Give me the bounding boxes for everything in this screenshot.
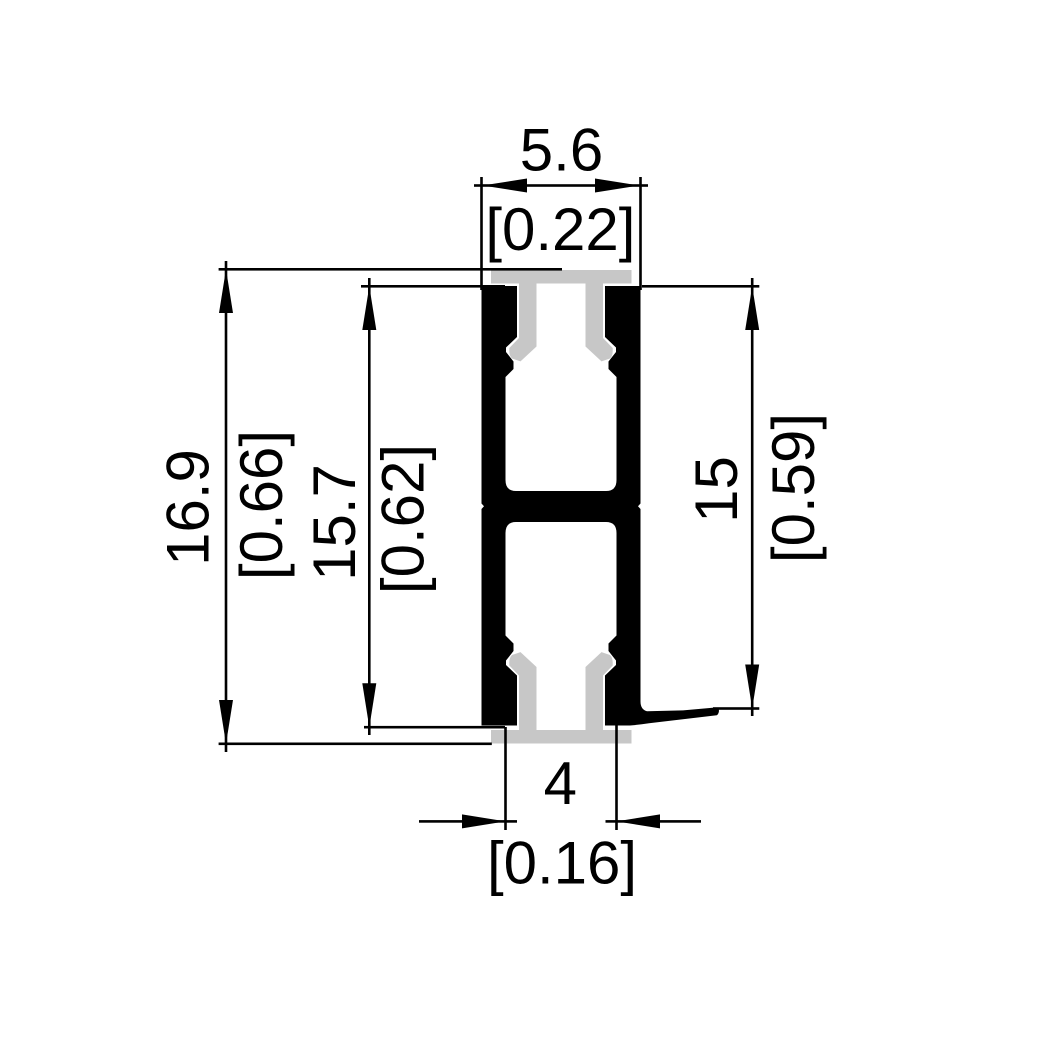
svg-text:4: 4 — [544, 750, 577, 817]
svg-text:[0.66]: [0.66] — [228, 430, 295, 580]
svg-text:16.9: 16.9 — [155, 449, 222, 566]
svg-text:15.7: 15.7 — [301, 464, 368, 581]
svg-text:[0.62]: [0.62] — [369, 444, 436, 594]
svg-text:[0.59]: [0.59] — [760, 413, 827, 563]
svg-text:15: 15 — [683, 456, 750, 523]
svg-text:[0.16]: [0.16] — [487, 829, 637, 896]
svg-text:5.6: 5.6 — [520, 117, 603, 184]
svg-text:[0.22]: [0.22] — [485, 196, 635, 263]
